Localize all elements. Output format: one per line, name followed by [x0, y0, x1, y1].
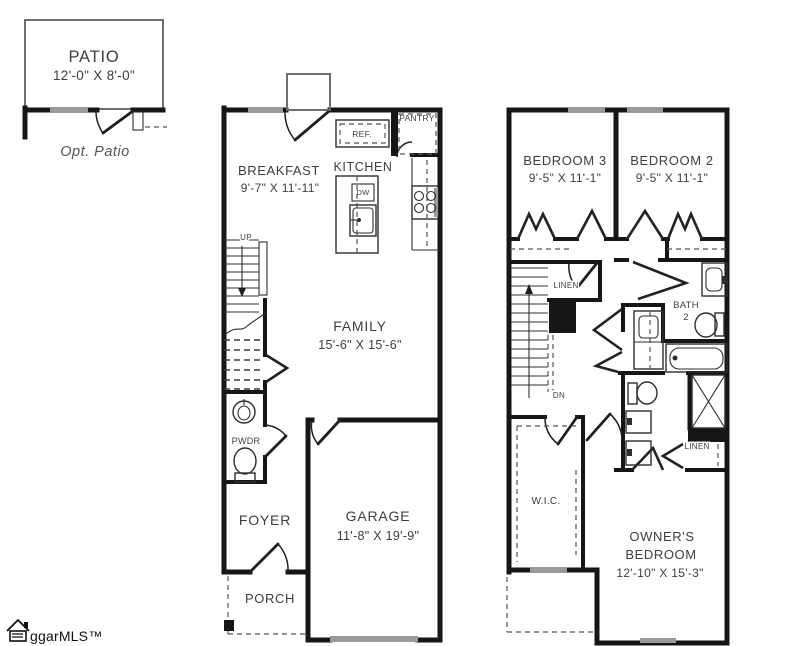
floor-plan-page: PATIO 12'-0" X 8'-0" Opt. Patio: [0, 0, 800, 646]
patio-step: [133, 112, 143, 130]
range-stove: [412, 186, 438, 219]
front-door-arc: [278, 544, 288, 572]
wall-top-right-right: [330, 110, 440, 640]
room-label-owners-line1: OWNER'S: [629, 529, 694, 544]
first-floor-plan: BREAKFAST 9'-7" X 11'-11" KITCHEN REF. P…: [224, 74, 440, 642]
rear-door-arc: [285, 112, 295, 140]
stair-handrail: [259, 242, 267, 295]
room-label-foyer: FOYER: [239, 512, 291, 528]
bath2-corner-sink: [702, 263, 727, 296]
room-label-breakfast: BREAKFAST: [238, 163, 320, 178]
linen-lower-door: [663, 444, 683, 468]
label-stairs-up: UP: [240, 233, 252, 242]
patio-dims: 12'-0" X 8'-0": [53, 68, 135, 83]
front-door-leaf: [250, 544, 278, 572]
garage-entry-arc: [311, 420, 318, 444]
room-label-owners-line2: BEDROOM: [625, 547, 696, 562]
second-floor-plan: BEDROOM 3 9'-5" X 11'-1" BEDROOM 2 9'-5"…: [507, 107, 727, 643]
wall-kitchen-stub: [391, 112, 398, 156]
wall-stair-poche: [549, 298, 576, 333]
hall-door-lower: [596, 352, 622, 373]
island-sink: [350, 205, 376, 236]
bath2-vanity: [634, 311, 663, 369]
floor-plan-image: PATIO 12'-0" X 8'-0" Opt. Patio: [0, 0, 800, 646]
wic-shelving: [517, 426, 576, 562]
hall-door-upper: [594, 309, 622, 350]
owners-entry-leaf: [587, 414, 610, 440]
room-label-wic: W.I.C.: [531, 496, 560, 507]
powder-door-arc: [265, 425, 286, 436]
bedroom2-entry-door: [627, 211, 663, 239]
room-label-family: FAMILY: [333, 318, 387, 334]
wic-window: [530, 567, 567, 573]
patio-label: PATIO: [68, 48, 119, 66]
bath2-entry-door: [633, 262, 686, 299]
garage-entry-leaf: [318, 420, 340, 444]
owners-window: [640, 638, 676, 643]
owners-bath-door: [632, 448, 663, 470]
room-dims-family: 15'-6" X 15'-6": [318, 338, 401, 352]
shower: [692, 375, 725, 428]
label-linen-lower: LINEN: [684, 442, 709, 451]
patio-window: [50, 107, 88, 113]
breakfast-window: [248, 107, 283, 113]
patio-plan: PATIO 12'-0" X 8'-0" Opt. Patio: [25, 20, 167, 160]
stair-break-line: [225, 313, 266, 335]
patio-caption: Opt. Patio: [60, 144, 129, 160]
wall-wic: [509, 417, 583, 570]
watermark-logo: ggarMLS™: [7, 620, 102, 644]
label-stairs-dn: DN: [553, 391, 565, 400]
bedroom3-entry-door: [577, 211, 606, 239]
porch-post: [224, 620, 234, 631]
label-bath2-line2: 2: [683, 312, 689, 323]
stairs-second-floor: [511, 268, 553, 398]
room-label-powder: PWDR: [232, 436, 261, 446]
stair-rail-dashed: [548, 335, 553, 392]
brand-text: ggarMLS™: [30, 628, 102, 644]
room-dims-bedroom2: 9'-5" X 11'-1": [636, 171, 708, 185]
powder-sink: [233, 399, 255, 423]
room-label-bedroom3: BEDROOM 3: [523, 153, 606, 168]
label-bath2-line1: BATH: [673, 300, 699, 311]
label-linen-upper: LINEN: [553, 281, 578, 290]
label-refrigerator: REF.: [352, 129, 372, 139]
understair-door: [266, 355, 287, 382]
wall-garage-left: [308, 420, 330, 640]
powder-toilet: [234, 448, 256, 482]
room-label-kitchen: KITCHEN: [333, 160, 392, 174]
label-dishwasher: DW: [356, 188, 370, 197]
wic-door-arc: [545, 417, 558, 444]
powder-door-leaf: [265, 436, 286, 457]
room-dims-owners: 12'-10" X 15'-3": [616, 566, 703, 580]
stairs-first-floor: [224, 240, 287, 389]
bedroom3-closet-bifold: [518, 214, 555, 239]
room-label-bedroom2: BEDROOM 2: [630, 153, 713, 168]
house-icon: [7, 620, 29, 641]
label-pantry: PANTRY: [399, 113, 435, 123]
patio-door-leaf: [103, 111, 133, 133]
room-dims-breakfast: 9'-7" X 11'-11": [241, 181, 320, 195]
patio-door-arc: [96, 111, 103, 133]
bedroom2-window: [627, 107, 663, 113]
room-dims-bedroom3: 9'-5" X 11'-1": [529, 171, 601, 185]
wall-closet-bottoms: [509, 239, 727, 262]
room-label-garage: GARAGE: [346, 508, 411, 524]
owners-toilet: [628, 382, 657, 404]
bath2-toilet: [695, 313, 724, 337]
bedroom3-window: [568, 107, 605, 113]
room-label-porch: PORCH: [245, 591, 295, 606]
linen-upper-door-leaf: [577, 263, 597, 288]
room-dims-garage: 11'-8" X 19'-9": [337, 529, 420, 543]
garage-door: [330, 636, 418, 642]
optional-area-outline: [507, 577, 594, 632]
bathtub: [666, 344, 727, 372]
wall-bath-hall: [623, 305, 663, 470]
owners-vanity: [626, 411, 651, 465]
rear-stoop: [287, 74, 330, 110]
owners-entry-arc: [610, 414, 622, 440]
bedroom2-closet-bifold: [668, 214, 702, 239]
rear-door-leaf: [295, 112, 328, 140]
wall-shower-poche: [688, 428, 727, 442]
wic-door-leaf: [558, 417, 577, 444]
